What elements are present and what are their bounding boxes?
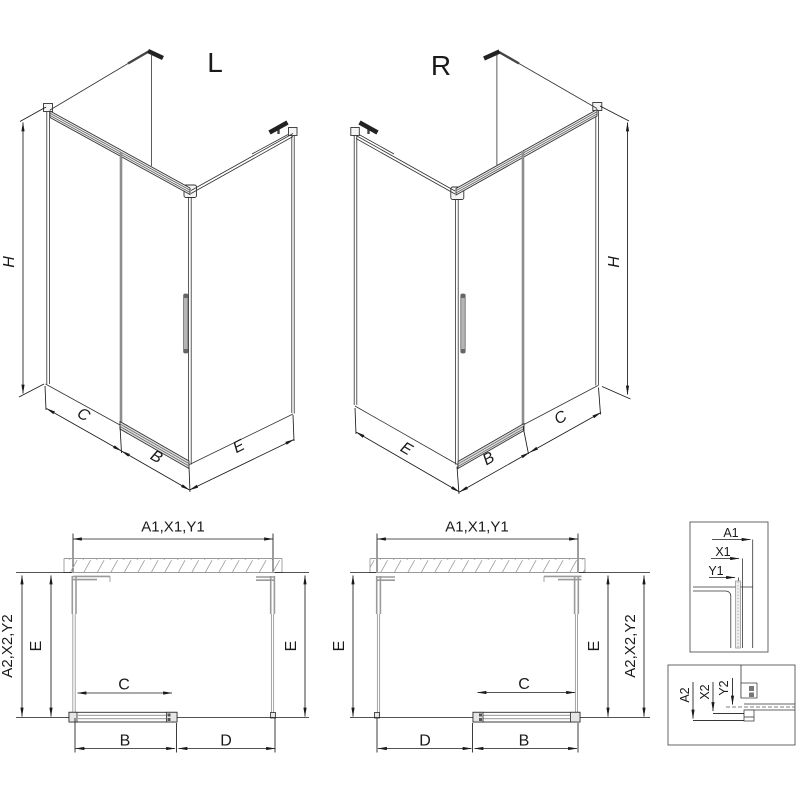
dim-label-e-r: E: [397, 439, 415, 459]
side-panel-top-edge-l: [191, 134, 293, 194]
dim-label-b-plan-r: B: [519, 733, 530, 750]
iso-view-l: L: [1, 47, 297, 492]
wall-hatch-l: [64, 559, 282, 573]
variant-label-r: R: [431, 50, 451, 81]
wall-hatch-r: [370, 559, 585, 573]
dim-label-e-right-r: E: [586, 641, 603, 652]
dim-label-a1x1y1-l: A1,X1,Y1: [141, 519, 204, 536]
dim-label-c-l: C: [74, 405, 93, 426]
detail-label-a2: A2: [678, 687, 692, 702]
iso-view-r: R: [351, 50, 631, 494]
side-panel-top-edge-r: [356, 136, 455, 195]
technical-drawing-page: L: [0, 0, 800, 800]
dimensions-iso-r: H E B C: [355, 106, 631, 494]
dim-label-a2x2y2-l: A2,X2,Y2: [0, 614, 16, 677]
plan-view-r: A1,X1,Y1: [331, 519, 650, 753]
dim-label-d-plan-l: D: [220, 733, 232, 750]
detail-label-x1: X1: [715, 545, 730, 559]
detail-label-y1: Y1: [708, 564, 723, 578]
dim-label-h-r: H: [606, 256, 623, 268]
dim-label-h-l: H: [1, 256, 18, 268]
dim-label-b-l: B: [147, 447, 165, 467]
detail-label-x2: X2: [698, 684, 712, 699]
dim-label-e-left-r: E: [331, 641, 348, 652]
dim-label-c-plan-r: C: [518, 676, 530, 693]
dim-label-d-plan-r: D: [419, 733, 431, 750]
dim-label-b-plan-l: B: [120, 733, 131, 750]
dim-label-e-left-l: E: [28, 641, 45, 652]
dim-label-a2x2y2-r: A2,X2,Y2: [622, 614, 639, 677]
top-rail-r: [456, 110, 597, 196]
wall-bracket-side-r: [359, 123, 394, 155]
dim-label-e-right-l: E: [283, 641, 300, 652]
detail-view-top: A1 X1 Y1: [690, 522, 768, 652]
dim-label-c-r: C: [551, 408, 570, 429]
plan-view-l: A1,X1,Y1: [0, 519, 309, 753]
detail-label-a1: A1: [723, 526, 738, 540]
dim-label-c-plan-l: C: [118, 677, 130, 694]
variant-label-l: L: [207, 47, 223, 78]
wall-profile-left-r: [377, 576, 396, 717]
detail-view-bottom: A2 X2 Y2: [668, 665, 795, 745]
dim-label-a1x1y1-r: A1,X1,Y1: [445, 519, 508, 536]
detail-box-bottom: [668, 665, 795, 745]
wall-profile-right-l: [256, 576, 275, 717]
wall-profile-right-r: [544, 576, 582, 717]
door-handle-l: [184, 294, 188, 353]
detail-label-y2: Y2: [717, 680, 731, 695]
drawing-canvas: L: [0, 0, 800, 800]
door-handle-r: [461, 294, 465, 353]
dim-label-e-l: E: [230, 437, 248, 457]
wall-profile-left-l: [72, 576, 110, 717]
dim-label-b-r: B: [480, 449, 498, 469]
